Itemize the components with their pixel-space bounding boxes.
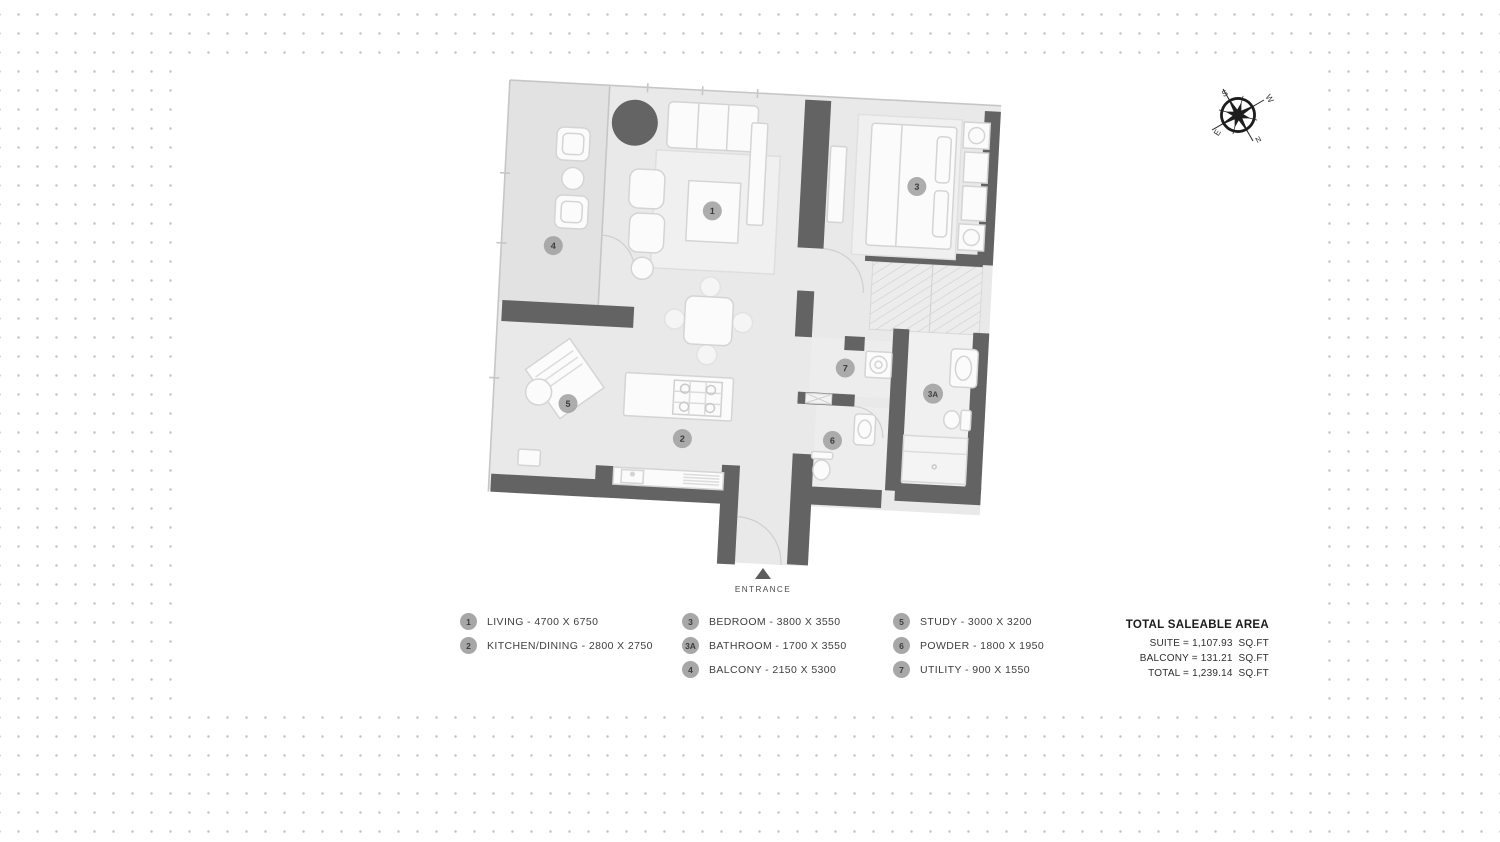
legend-item-kitchen-dining: 2 KITCHEN/DINING - 2800 X 2750 bbox=[460, 637, 653, 654]
svg-text:4: 4 bbox=[551, 241, 557, 251]
stool bbox=[518, 449, 541, 466]
entrance-arrow-icon bbox=[755, 568, 771, 579]
legend-badge: 3 bbox=[682, 613, 699, 630]
svg-text:3A: 3A bbox=[928, 390, 939, 400]
door-lintel bbox=[805, 393, 831, 404]
totals-title: TOTAL SALEABLE AREA bbox=[1126, 619, 1269, 631]
legend-label: UTILITY - 900 X 1550 bbox=[920, 664, 1030, 676]
svg-text:2: 2 bbox=[680, 434, 686, 444]
pillow bbox=[935, 137, 951, 184]
legend-badge: 7 bbox=[893, 661, 910, 678]
washing-machine bbox=[865, 351, 892, 378]
totals-balcony: BALCONY = 131.21 SQ.FT bbox=[1126, 651, 1269, 666]
nightstand bbox=[963, 122, 990, 149]
dining-table bbox=[683, 296, 733, 346]
legend-item-powder: 6 POWDER - 1800 X 1950 bbox=[893, 637, 1044, 654]
toilet-tank bbox=[812, 451, 833, 459]
utility-fixtures bbox=[865, 351, 892, 378]
svg-text:5: 5 bbox=[565, 399, 571, 409]
armchair bbox=[628, 213, 665, 254]
balcony-floor bbox=[498, 80, 609, 307]
legend-label: POWDER - 1800 X 1950 bbox=[920, 640, 1044, 652]
legend-label: BEDROOM - 3800 X 3550 bbox=[709, 616, 841, 628]
legend-column-2: 3 BEDROOM - 3800 X 3550 3A BATHROOM - 17… bbox=[682, 613, 847, 685]
sofa bbox=[667, 101, 759, 152]
legend-item-balcony: 4 BALCONY - 2150 X 5300 bbox=[682, 661, 847, 678]
totals-total: TOTAL = 1,239.14 SQ.FT bbox=[1126, 666, 1269, 681]
kitchen-island bbox=[623, 373, 733, 422]
svg-text:7: 7 bbox=[843, 363, 849, 373]
dresser bbox=[961, 186, 987, 221]
svg-text:6: 6 bbox=[830, 436, 836, 446]
legend-label: BATHROOM - 1700 X 3550 bbox=[709, 640, 847, 652]
compass-w: W bbox=[1263, 92, 1276, 104]
shower bbox=[901, 435, 967, 484]
toilet bbox=[812, 460, 830, 481]
armchair bbox=[628, 169, 665, 210]
desk-chair bbox=[525, 378, 552, 405]
legend-badge: 4 bbox=[682, 661, 699, 678]
legend-label: BALCONY - 2150 X 5300 bbox=[709, 664, 836, 676]
pouf bbox=[631, 257, 654, 280]
pillow bbox=[932, 190, 948, 237]
legend-label: LIVING - 4700 X 6750 bbox=[487, 616, 598, 628]
legend-label: KITCHEN/DINING - 2800 X 2750 bbox=[487, 640, 653, 652]
legend-badge: 1 bbox=[460, 613, 477, 630]
floor-plan: 1 2 3 3A 4 bbox=[480, 76, 1001, 577]
svg-text:1: 1 bbox=[710, 206, 716, 216]
entrance-marker: ENTRANCE bbox=[735, 568, 791, 594]
bath-sink bbox=[949, 349, 978, 388]
legend-badge: 2 bbox=[460, 637, 477, 654]
legend-badge: 6 bbox=[893, 637, 910, 654]
legend-item-living: 1 LIVING - 4700 X 6750 bbox=[460, 613, 653, 630]
closet-shelving bbox=[869, 261, 982, 335]
dresser bbox=[963, 152, 989, 183]
total-saleable-area: TOTAL SALEABLE AREA SUITE = 1,107.93 SQ.… bbox=[1126, 619, 1269, 681]
legend-item-bathroom: 3A BATHROOM - 1700 X 3550 bbox=[682, 637, 847, 654]
wardrobe-console bbox=[827, 146, 847, 223]
toilet-tank bbox=[960, 410, 971, 430]
legend-column-3: 5 STUDY - 3000 X 3200 6 POWDER - 1800 X … bbox=[893, 613, 1044, 685]
floorplan-page: 1 2 3 3A 4 bbox=[0, 0, 1500, 842]
compass-e: E bbox=[1211, 127, 1223, 137]
powder-sink bbox=[853, 414, 876, 446]
legend-column-1: 1 LIVING - 4700 X 6750 2 KITCHEN/DINING … bbox=[460, 613, 653, 661]
legend-item-study: 5 STUDY - 3000 X 3200 bbox=[893, 613, 1044, 630]
nightstand bbox=[958, 224, 985, 251]
totals-suite: SUITE = 1,107.93 SQ.FT bbox=[1126, 636, 1269, 651]
legend-badge: 3A bbox=[682, 637, 699, 654]
compass-n: N bbox=[1254, 134, 1263, 145]
legend-label: STUDY - 3000 X 3200 bbox=[920, 616, 1032, 628]
legend-item-bedroom: 3 BEDROOM - 3800 X 3550 bbox=[682, 613, 847, 630]
entrance-label: ENTRANCE bbox=[735, 585, 791, 594]
legend-item-utility: 7 UTILITY - 900 X 1550 bbox=[893, 661, 1044, 678]
floorplan-canvas: 1 2 3 3A 4 bbox=[0, 0, 1500, 842]
toilet bbox=[943, 410, 960, 429]
compass-rose-icon: S W E N bbox=[1197, 74, 1279, 156]
svg-text:3: 3 bbox=[914, 182, 920, 192]
legend-badge: 5 bbox=[893, 613, 910, 630]
